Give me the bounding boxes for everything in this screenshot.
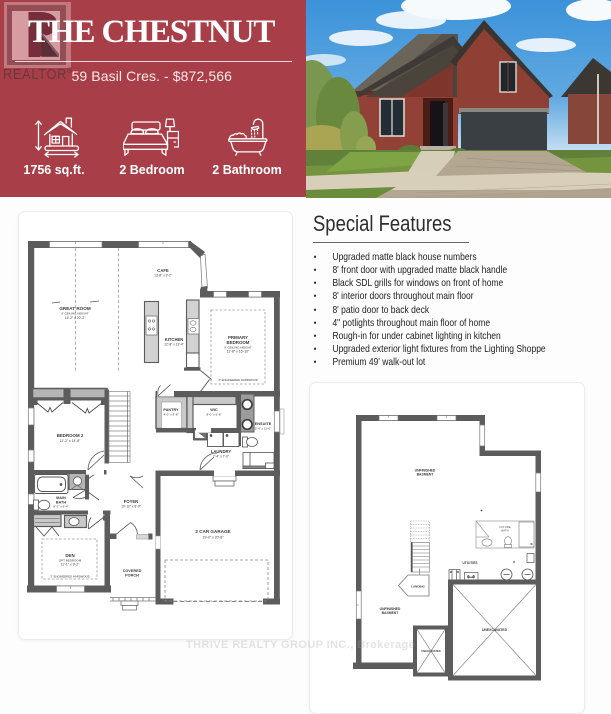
svg-text:GREAT ROOM: GREAT ROOM xyxy=(59,306,90,311)
svg-text:11'-2" x 14'-8": 11'-2" x 14'-8" xyxy=(60,439,81,443)
svg-text:MAIN: MAIN xyxy=(56,496,66,500)
svg-text:12'-8" x 13'-4": 12'-8" x 13'-4" xyxy=(164,343,184,347)
svg-text:LANDING: LANDING xyxy=(411,585,425,589)
svg-text:UNEXCAVATED: UNEXCAVATED xyxy=(482,628,508,632)
svg-text:BATH: BATH xyxy=(501,529,508,533)
svg-text:13'-8" x 9'-2": 13'-8" x 9'-2" xyxy=(154,274,172,278)
svg-text:8'-2" x 6'-4": 8'-2" x 6'-4" xyxy=(53,505,68,509)
svg-text:BEDROOM 2: BEDROOM 2 xyxy=(57,433,84,438)
svg-text:UTILITIES: UTILITIES xyxy=(462,561,477,565)
svg-text:11'-8" x 16'-10": 11'-8" x 16'-10" xyxy=(227,350,250,354)
svg-text:BASMENT: BASMENT xyxy=(417,473,435,477)
svg-text:BASMENT: BASMENT xyxy=(382,611,400,615)
svg-text:2 CAR GARAGE: 2 CAR GARAGE xyxy=(195,529,230,534)
svg-text:9' CEILING HEIGHT: 9' CEILING HEIGHT xyxy=(61,312,88,316)
svg-text:PORCH: PORCH xyxy=(125,574,139,578)
svg-text:19'-0" x 20'-8": 19'-0" x 20'-8" xyxy=(203,536,225,540)
svg-text:FOYER: FOYER xyxy=(124,499,138,504)
svg-text:KITCHEN: KITCHEN xyxy=(165,337,184,342)
svg-text:WIC: WIC xyxy=(210,408,218,412)
svg-text:UNEXCAVATED: UNEXCAVATED xyxy=(421,649,440,653)
svg-text:ENSUITE: ENSUITE xyxy=(255,422,272,426)
svg-text:PANTRY: PANTRY xyxy=(163,408,179,412)
svg-text:CAFE: CAFE xyxy=(157,268,169,273)
svg-text:10'-10" x 8'-0": 10'-10" x 8'-0" xyxy=(121,505,141,509)
svg-text:11'-1" x 9'-2": 11'-1" x 9'-2" xyxy=(61,563,81,567)
svg-text:0—0: 0—0 xyxy=(467,575,474,579)
svg-text:LAUNDRY: LAUNDRY xyxy=(211,449,232,454)
svg-text:3'' ENGINEERED HARDWOOD: 3'' ENGINEERED HARDWOOD xyxy=(218,378,258,382)
svg-text:COVERED: COVERED xyxy=(123,569,142,573)
svg-text:4'-0" x 6'-8": 4'-0" x 6'-8" xyxy=(163,413,178,417)
svg-text:BEDROOM: BEDROOM xyxy=(227,340,250,345)
svg-text:DEN: DEN xyxy=(65,553,74,558)
svg-text:5'-4" x 11'-0": 5'-4" x 11'-0" xyxy=(255,427,272,431)
svg-text:3'' ENGINEERED HARDWOOD: 3'' ENGINEERED HARDWOOD xyxy=(50,575,90,579)
svg-text:13'-2" x 20'-2": 13'-2" x 20'-2" xyxy=(65,316,87,320)
svg-text:7'-4" x 7'-0": 7'-4" x 7'-0" xyxy=(213,455,229,459)
svg-text:8'-0" x 6'-8": 8'-0" x 6'-8" xyxy=(206,413,221,417)
